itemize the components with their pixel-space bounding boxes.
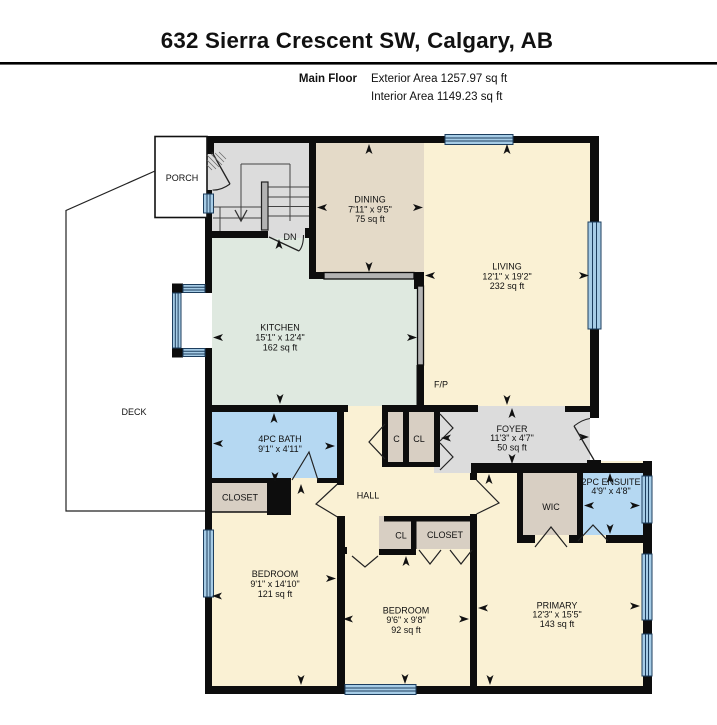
svg-text:BEDROOM: BEDROOM bbox=[252, 569, 299, 579]
svg-text:92 sq ft: 92 sq ft bbox=[391, 625, 421, 635]
svg-text:DECK: DECK bbox=[121, 407, 146, 417]
svg-text:121 sq ft: 121 sq ft bbox=[258, 589, 293, 599]
svg-text:LIVING: LIVING bbox=[492, 262, 522, 272]
svg-text:Interior Area 1149.23 sq ft: Interior Area 1149.23 sq ft bbox=[371, 91, 503, 103]
svg-text:11'3" x 4'7": 11'3" x 4'7" bbox=[490, 433, 534, 443]
svg-text:CLOSET: CLOSET bbox=[222, 493, 259, 503]
svg-text:CL: CL bbox=[395, 531, 407, 541]
svg-text:143 sq ft: 143 sq ft bbox=[540, 619, 575, 629]
svg-text:CL: CL bbox=[413, 434, 425, 444]
svg-text:15'1" x 12'4": 15'1" x 12'4" bbox=[255, 333, 304, 343]
svg-text:Main Floor: Main Floor bbox=[299, 73, 358, 85]
svg-text:9'1" x 4'11": 9'1" x 4'11" bbox=[258, 444, 302, 454]
svg-text:WIC: WIC bbox=[542, 502, 560, 512]
svg-text:50 sq ft: 50 sq ft bbox=[497, 443, 527, 453]
svg-text:12'1" x 19'2": 12'1" x 19'2" bbox=[482, 272, 531, 282]
svg-text:632 Sierra Crescent SW, Calgar: 632 Sierra Crescent SW, Calgary, AB bbox=[161, 28, 553, 53]
svg-text:4'9" x 4'8": 4'9" x 4'8" bbox=[591, 486, 630, 496]
svg-text:12'3" x 15'5": 12'3" x 15'5" bbox=[532, 610, 581, 620]
svg-text:F/P: F/P bbox=[434, 380, 448, 390]
svg-text:CLOSET: CLOSET bbox=[427, 530, 464, 540]
svg-text:4PC BATH: 4PC BATH bbox=[258, 434, 301, 444]
svg-text:DN: DN bbox=[284, 232, 297, 242]
svg-text:Exterior Area 1257.97 sq ft: Exterior Area 1257.97 sq ft bbox=[371, 73, 508, 85]
svg-text:232 sq ft: 232 sq ft bbox=[490, 281, 525, 291]
svg-text:9'6" x 9'8": 9'6" x 9'8" bbox=[386, 615, 425, 625]
svg-text:DINING: DINING bbox=[354, 195, 386, 205]
svg-text:9'1" x 14'10": 9'1" x 14'10" bbox=[250, 579, 299, 589]
svg-text:HALL: HALL bbox=[357, 491, 380, 501]
svg-text:75 sq ft: 75 sq ft bbox=[355, 214, 385, 224]
svg-text:7'11" x 9'5": 7'11" x 9'5" bbox=[348, 205, 392, 215]
svg-text:BEDROOM: BEDROOM bbox=[383, 606, 430, 616]
svg-text:C: C bbox=[393, 434, 400, 444]
svg-text:162 sq ft: 162 sq ft bbox=[263, 343, 298, 353]
svg-text:PORCH: PORCH bbox=[166, 173, 199, 183]
svg-text:KITCHEN: KITCHEN bbox=[260, 323, 300, 333]
